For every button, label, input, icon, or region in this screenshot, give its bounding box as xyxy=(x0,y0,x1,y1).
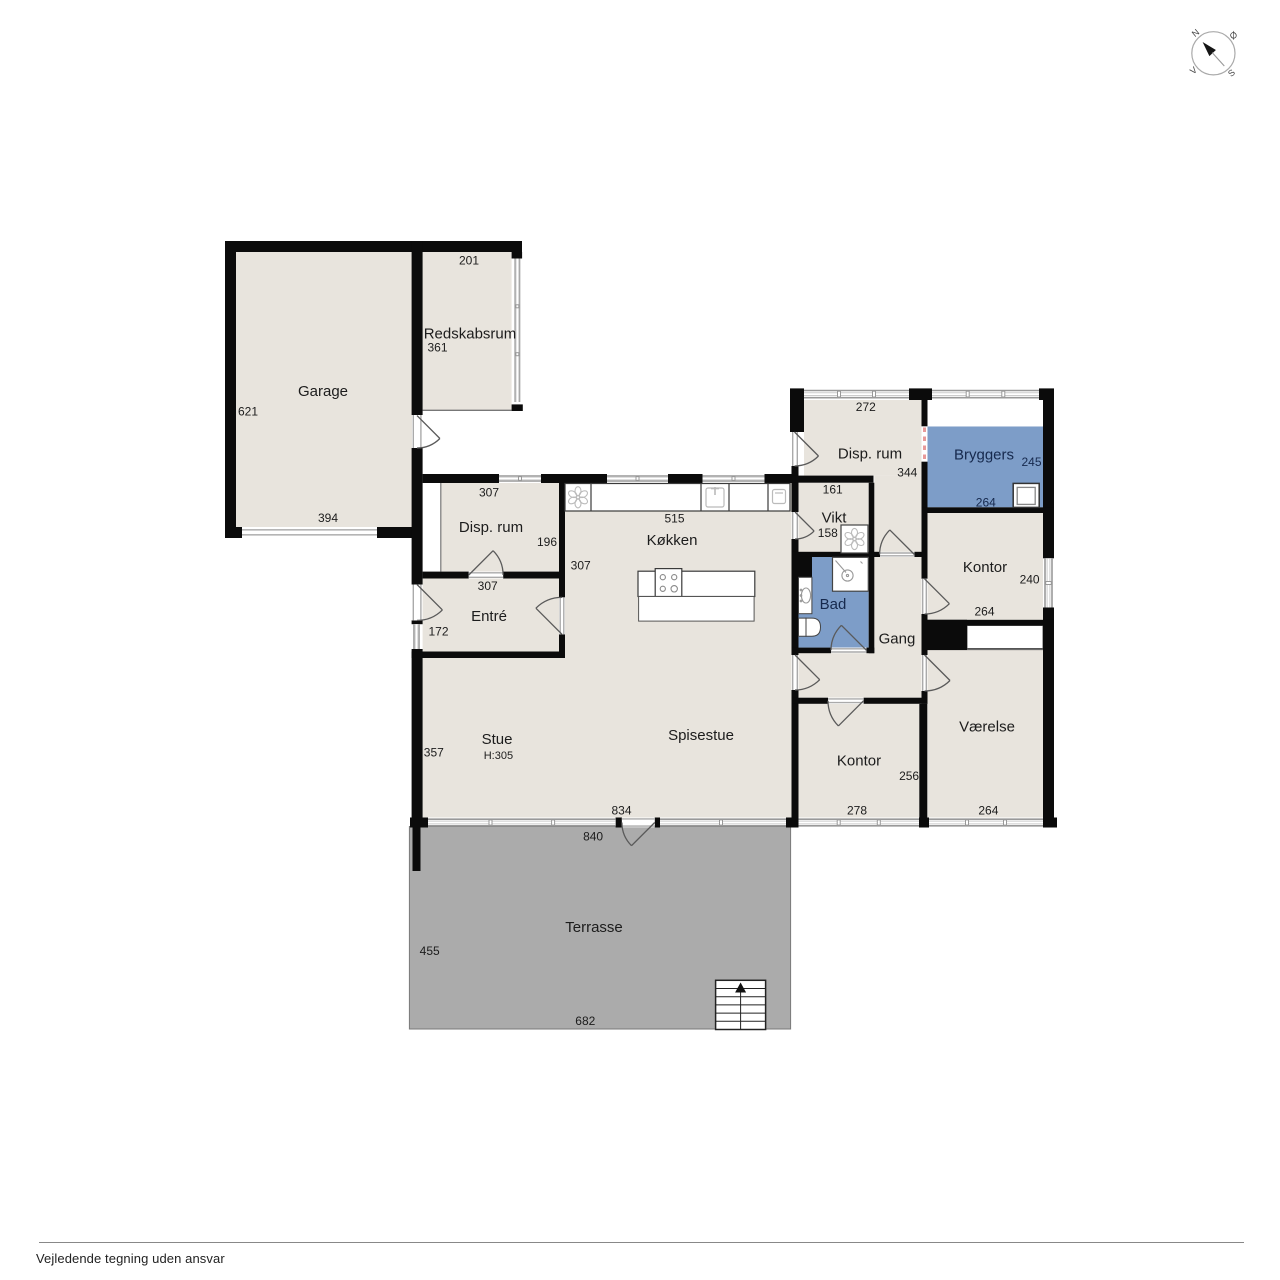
svg-text:196: 196 xyxy=(537,535,557,549)
svg-text:Gang: Gang xyxy=(879,631,916,648)
svg-text:Garage: Garage xyxy=(298,383,348,400)
svg-text:245: 245 xyxy=(1021,455,1041,469)
svg-text:Kontor: Kontor xyxy=(837,753,881,770)
svg-text:264: 264 xyxy=(974,605,994,619)
svg-text:Vejledende tegning uden ansvar: Vejledende tegning uden ansvar xyxy=(36,1251,225,1266)
svg-text:455: 455 xyxy=(420,944,440,958)
svg-text:Køkken: Køkken xyxy=(647,532,698,549)
svg-text:Spisestue: Spisestue xyxy=(668,727,734,744)
svg-text:256: 256 xyxy=(899,769,919,783)
svg-text:Stue: Stue xyxy=(482,731,513,748)
svg-text:Disp. rum: Disp. rum xyxy=(459,519,523,536)
svg-text:Kontor: Kontor xyxy=(963,559,1007,576)
svg-text:H:305: H:305 xyxy=(484,750,513,762)
svg-text:240: 240 xyxy=(1020,573,1040,587)
svg-text:201: 201 xyxy=(459,253,479,267)
svg-text:394: 394 xyxy=(318,511,338,525)
svg-text:172: 172 xyxy=(428,625,448,639)
svg-text:840: 840 xyxy=(583,830,603,844)
svg-text:Vikt: Vikt xyxy=(822,510,848,527)
svg-text:264: 264 xyxy=(976,496,996,510)
svg-text:Disp. rum: Disp. rum xyxy=(838,446,902,463)
svg-text:161: 161 xyxy=(823,482,843,496)
svg-text:361: 361 xyxy=(427,340,447,354)
svg-text:264: 264 xyxy=(978,804,998,818)
svg-text:344: 344 xyxy=(897,465,917,479)
svg-text:682: 682 xyxy=(575,1014,595,1028)
svg-text:357: 357 xyxy=(424,746,444,760)
svg-text:307: 307 xyxy=(571,559,591,573)
svg-text:307: 307 xyxy=(478,579,498,593)
svg-text:834: 834 xyxy=(611,803,631,817)
svg-text:307: 307 xyxy=(479,486,499,500)
svg-text:Bryggers: Bryggers xyxy=(954,446,1014,463)
svg-text:621: 621 xyxy=(238,404,258,418)
svg-text:515: 515 xyxy=(664,512,684,526)
svg-text:278: 278 xyxy=(847,804,867,818)
svg-text:158: 158 xyxy=(818,526,838,540)
svg-text:Bad: Bad xyxy=(820,596,847,613)
svg-text:Værelse: Værelse xyxy=(959,719,1015,736)
svg-text:Entré: Entré xyxy=(471,608,507,625)
svg-text:272: 272 xyxy=(856,400,876,414)
svg-text:Terrasse: Terrasse xyxy=(565,919,623,936)
